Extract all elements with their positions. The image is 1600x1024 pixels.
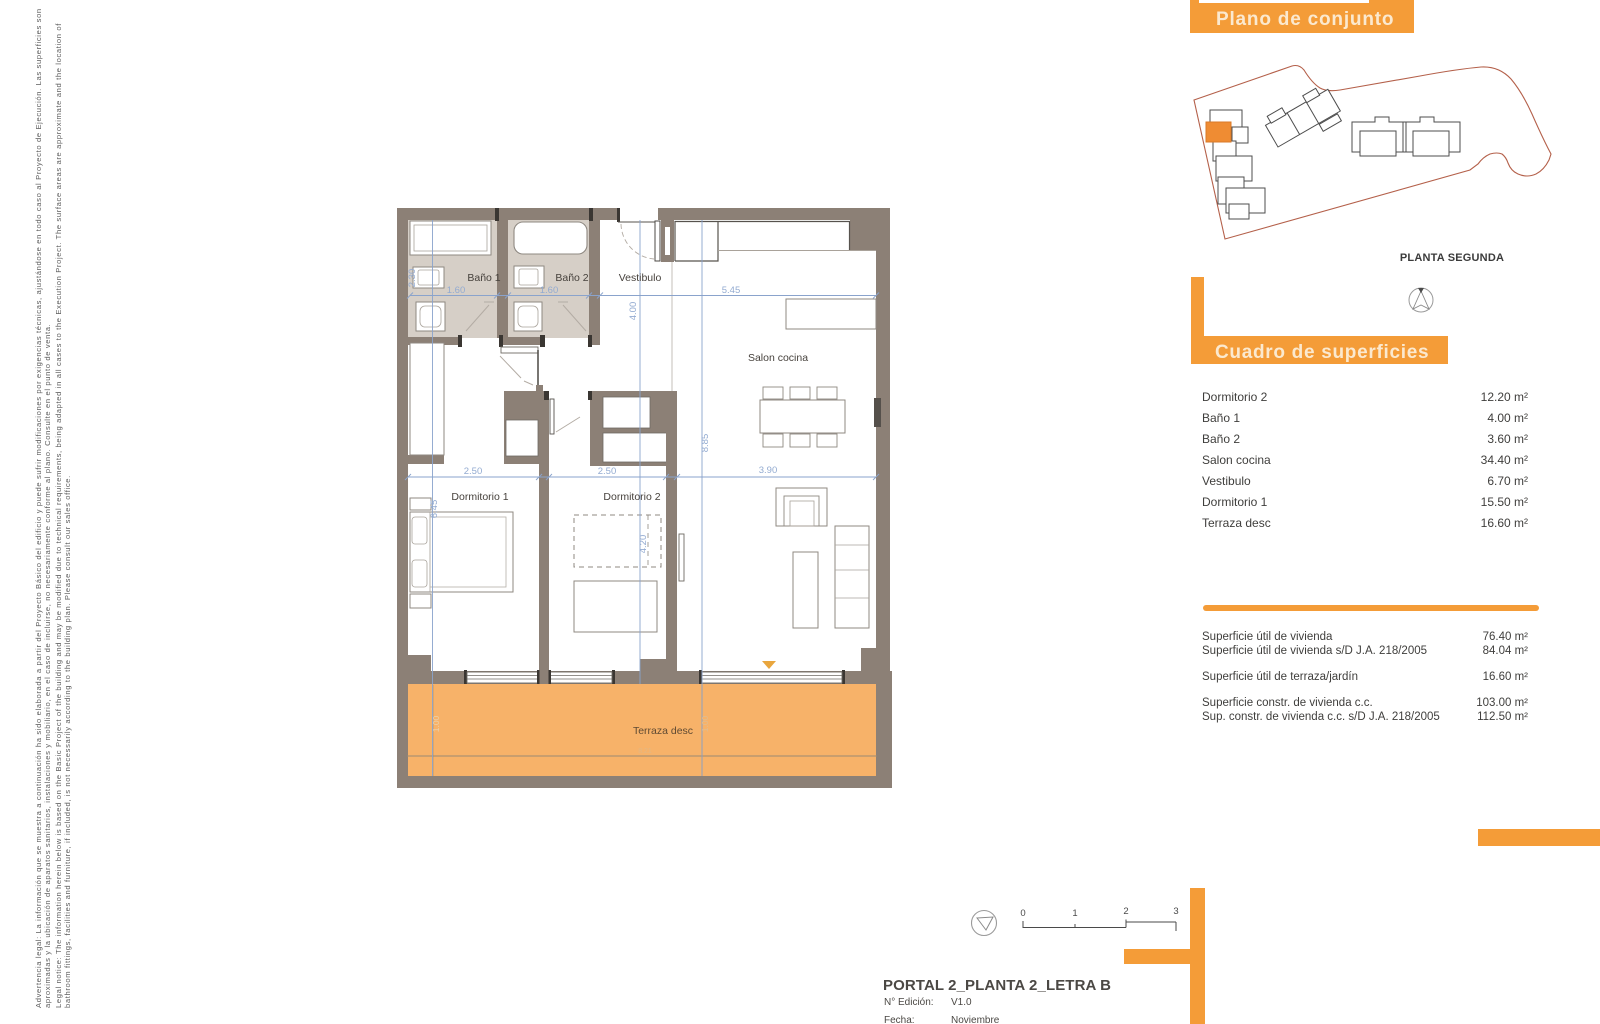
svg-text:3.60 m²: 3.60 m² (1487, 432, 1528, 446)
svg-text:12.20 m²: 12.20 m² (1481, 390, 1528, 404)
svg-text:103.00 m²: 103.00 m² (1476, 697, 1528, 709)
svg-text:Dormitorio 2: Dormitorio 2 (603, 491, 660, 503)
svg-text:PLANTA SEGUNDA: PLANTA SEGUNDA (1400, 252, 1504, 264)
svg-text:2.50: 2.50 (464, 466, 483, 477)
svg-text:1.00: 1.00 (431, 715, 441, 732)
svg-text:Superficie útil de terraza/jar: Superficie útil de terraza/jardín (1202, 671, 1358, 683)
svg-text:Terraza desc: Terraza desc (1202, 516, 1271, 530)
svg-text:2: 2 (1123, 906, 1128, 917)
svg-text:V1.0: V1.0 (951, 997, 972, 1008)
svg-text:Cuadro de superficies: Cuadro de superficies (1215, 342, 1429, 363)
svg-text:Vestibulo: Vestibulo (619, 272, 662, 284)
svg-text:Salon cocina: Salon cocina (1202, 453, 1271, 467)
svg-text:Dormitorio 2: Dormitorio 2 (1202, 390, 1268, 404)
svg-text:16.60 m²: 16.60 m² (1483, 671, 1529, 683)
svg-text:6.70 m²: 6.70 m² (1487, 474, 1528, 488)
svg-text:3: 3 (1173, 906, 1178, 917)
svg-text:112.50 m²: 112.50 m² (1477, 711, 1528, 723)
svg-text:Vestibulo: Vestibulo (1202, 474, 1251, 488)
svg-text:16.60 m²: 16.60 m² (1481, 516, 1528, 530)
svg-text:4.20: 4.20 (638, 535, 649, 554)
svg-text:Salon cocina: Salon cocina (748, 352, 808, 364)
svg-text:Fecha:: Fecha: (884, 1015, 915, 1024)
svg-text:5.45: 5.45 (722, 285, 741, 296)
svg-text:1.60: 1.60 (540, 285, 559, 296)
svg-text:Baño 1: Baño 1 (1202, 411, 1240, 425)
svg-text:Baño 2: Baño 2 (555, 272, 588, 284)
svg-text:Sup. constr. de vivienda c.c.: Sup. constr. de vivienda c.c. s/D J.A. 2… (1202, 711, 1440, 723)
svg-text:76.40 m²: 76.40 m² (1483, 631, 1529, 643)
svg-text:Baño 2: Baño 2 (1202, 432, 1240, 446)
svg-text:Plano de conjunto: Plano de conjunto (1216, 9, 1394, 30)
svg-text:PORTAL 2_PLANTA 2_LETRA B: PORTAL 2_PLANTA 2_LETRA B (883, 977, 1111, 994)
svg-text:2.50: 2.50 (598, 466, 617, 477)
svg-text:aproximadas y la ubicación de: aproximadas y la ubicación de aparatos s… (43, 324, 52, 1008)
svg-text:Baño 1: Baño 1 (467, 272, 500, 284)
svg-text:Advertencia legal: La informac: Advertencia legal: La información que se… (34, 8, 43, 1008)
svg-text:4.00: 4.00 (628, 302, 639, 321)
svg-text:0: 0 (1020, 908, 1025, 919)
svg-text:8.21: 8.21 (638, 748, 652, 755)
svg-text:15.50 m²: 15.50 m² (1481, 495, 1528, 509)
svg-text:Dormitorio 1: Dormitorio 1 (1202, 495, 1268, 509)
svg-text:Dormitorio 1: Dormitorio 1 (451, 491, 508, 503)
svg-text:1: 1 (1072, 908, 1077, 919)
svg-text:N° Edición:: N° Edición: (884, 997, 934, 1008)
svg-text:6.45: 6.45 (429, 500, 440, 519)
svg-text:3.90: 3.90 (759, 465, 778, 476)
svg-text:1.60: 1.60 (447, 285, 466, 296)
svg-text:4.00 m²: 4.00 m² (1487, 411, 1528, 425)
svg-text:Noviembre: Noviembre (951, 1015, 1000, 1024)
svg-text:8.85: 8.85 (700, 434, 711, 453)
svg-text:Superficie constr. de vivienda: Superficie constr. de vivienda c.c. (1202, 697, 1373, 709)
svg-text:Superficie útil de vivienda: Superficie útil de vivienda (1202, 631, 1333, 643)
svg-text:84.04 m²: 84.04 m² (1483, 645, 1529, 657)
svg-text:bathroom fittings, facilities: bathroom fittings, facilities and furnit… (63, 475, 72, 1008)
svg-text:34.40 m²: 34.40 m² (1481, 453, 1528, 467)
svg-text:1.00: 1.00 (700, 715, 710, 732)
svg-text:Legal notice: The information: Legal notice: The information herein bel… (54, 23, 63, 1008)
svg-text:2.30: 2.30 (407, 269, 418, 288)
svg-text:Superficie útil de vivienda s/: Superficie útil de vivienda s/D J.A. 218… (1202, 645, 1427, 657)
svg-text:Terraza desc: Terraza desc (633, 725, 693, 737)
